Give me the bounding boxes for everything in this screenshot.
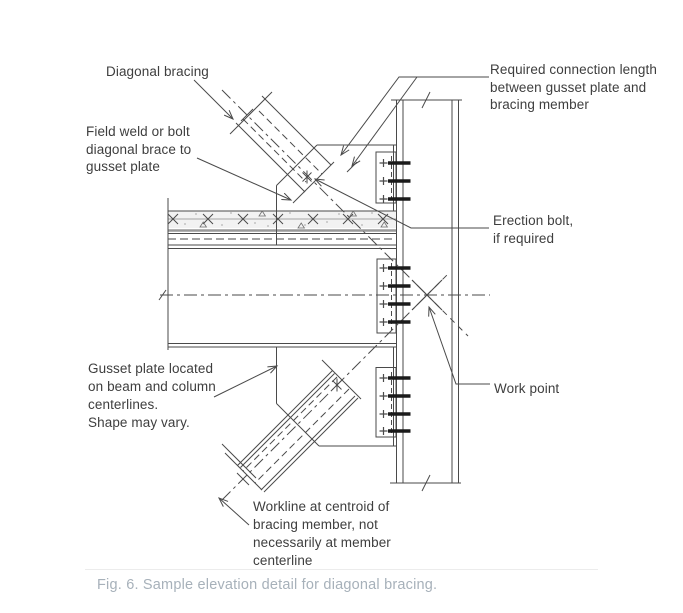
lower-brace-end-line [225, 453, 262, 490]
label-erection-bolt: Erection bolt, if required [493, 212, 573, 247]
figure-diagonal-bracing: Diagonal bracing Field weld or bolt diag… [0, 0, 683, 613]
leader-required-length-b [352, 77, 417, 166]
caption-divider [85, 569, 598, 570]
upper-brace-near-end-line [293, 162, 334, 203]
slab [168, 211, 396, 231]
required-length-tick [347, 162, 357, 172]
label-line: centerlines. [88, 396, 216, 414]
figure-caption: Fig. 6. Sample elevation detail for diag… [97, 577, 437, 593]
leader-required-length-a [341, 77, 489, 155]
label-line: diagonal brace to [86, 141, 191, 159]
label-line: on beam and column [88, 378, 216, 396]
label-line: gusset plate [86, 158, 191, 176]
label-line: bracing member [490, 96, 657, 114]
label-field-weld: Field weld or bolt diagonal brace to gus… [86, 123, 191, 176]
label-line: necessarily at member [253, 534, 391, 552]
label-line: if required [493, 230, 573, 248]
label-line: centerline [253, 552, 391, 570]
label-line: between gusset plate and [490, 79, 657, 97]
label-line: Work point [494, 380, 559, 398]
leader-work-point [429, 307, 490, 384]
label-line: Field weld or bolt [86, 123, 191, 141]
label-diagonal-bracing: Diagonal bracing [106, 63, 209, 81]
bolts-upper [380, 159, 388, 203]
label-required-length: Required connection length between gusse… [490, 61, 657, 114]
label-line: bracing member, not [253, 516, 391, 534]
label-line: Diagonal bracing [106, 63, 209, 81]
label-line: Shape may vary. [88, 414, 216, 432]
label-gusset-plate: Gusset plate located on beam and column … [88, 360, 216, 432]
label-line: Workline at centroid of [253, 498, 391, 516]
leader-gusset-plate [214, 366, 277, 397]
work-point-mark [412, 280, 442, 310]
label-line: Required connection length [490, 61, 657, 79]
label-line: Erection bolt, [493, 212, 573, 230]
leaders [194, 77, 490, 525]
bolts-lower [380, 374, 388, 435]
beam-shear-plate [377, 259, 411, 333]
lower-brace-end-line-2 [222, 444, 256, 478]
leader-workline [219, 498, 249, 525]
label-workline: Workline at centroid of bracing member, … [253, 498, 391, 570]
label-line: Gusset plate located [88, 360, 216, 378]
lower-gusset [277, 347, 397, 446]
label-work-point: Work point [494, 380, 559, 398]
leader-diagonal-bracing [194, 80, 233, 119]
